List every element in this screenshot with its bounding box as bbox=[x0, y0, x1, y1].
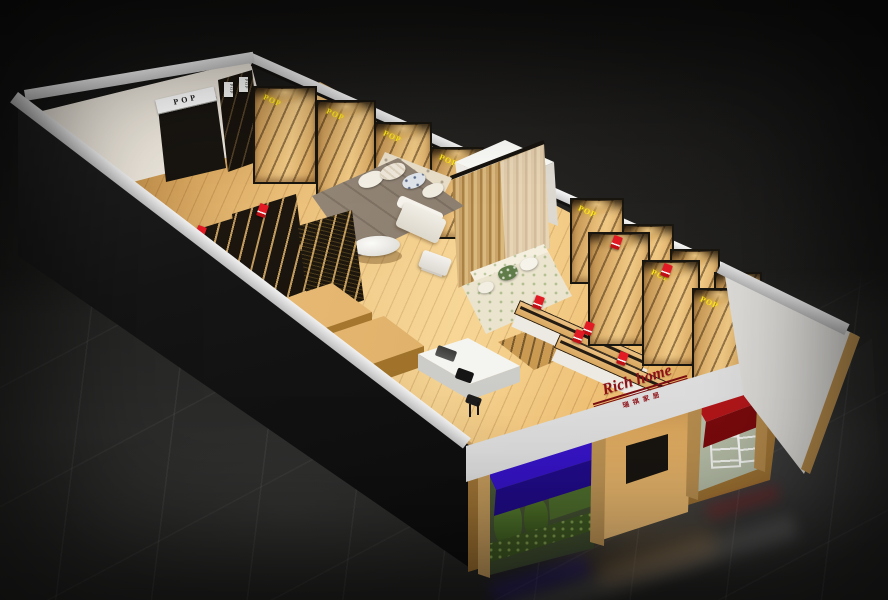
floor-shelf-unit bbox=[588, 232, 650, 346]
stool-leg bbox=[477, 402, 479, 415]
store-render-scene: POP POP POP POP POP POP POP POP bbox=[0, 0, 888, 600]
stool-leg bbox=[469, 404, 471, 417]
wall-shelf-unit: POP bbox=[253, 86, 317, 184]
pop-sign-white-small: POP bbox=[224, 82, 233, 97]
pop-sign-white-small: POP bbox=[239, 77, 248, 92]
